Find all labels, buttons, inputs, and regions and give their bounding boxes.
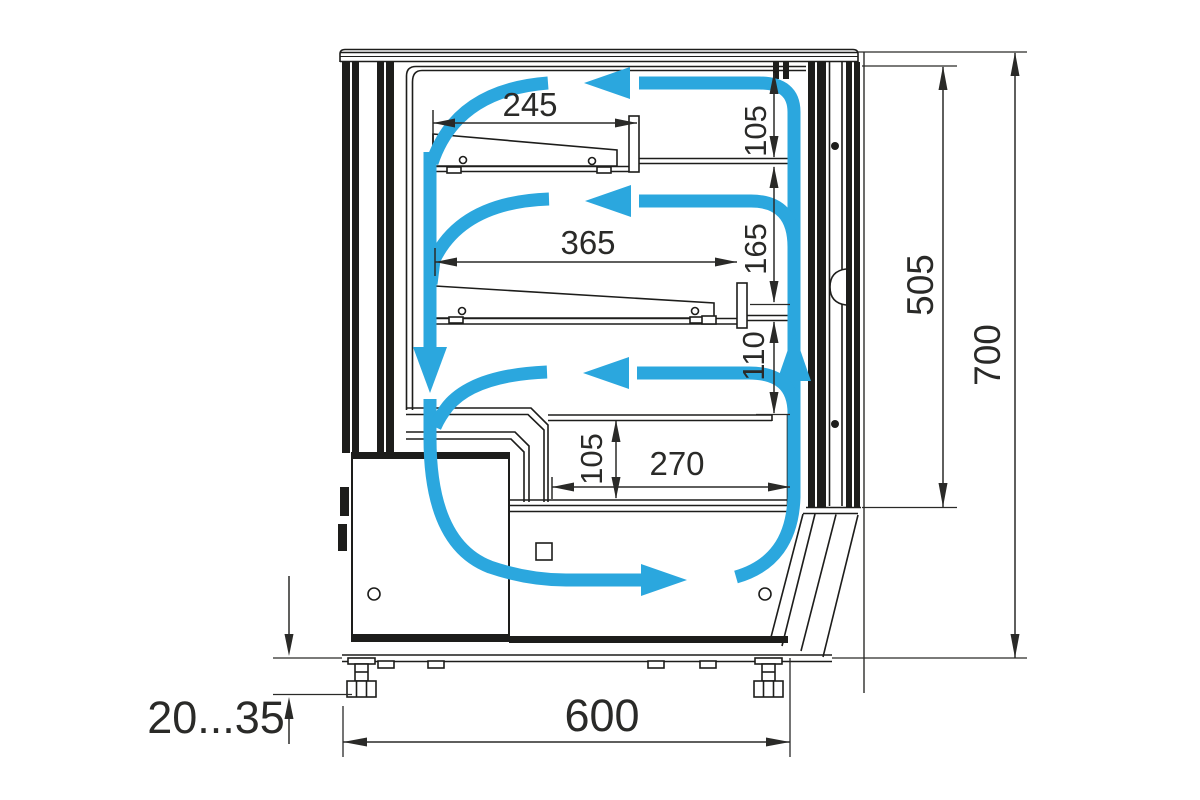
upper-shelf-bracket — [629, 116, 639, 172]
airflow-lower-left-curve — [435, 372, 547, 427]
airflow-right-arrow-icon — [641, 564, 687, 596]
dim-700 — [1011, 52, 1020, 658]
upper-shelf — [433, 116, 789, 173]
top-panel — [340, 50, 858, 63]
dim-270-label: 270 — [627, 447, 727, 481]
airflow-up-arrow-icon — [777, 332, 811, 381]
technical-drawing-canvas: 245 365 105 165 110 105 270 505 700 600 … — [0, 0, 1200, 800]
adjustable-foot-right — [754, 658, 783, 697]
airflow-middle-left-curve — [431, 199, 549, 284]
airflow-left-arrow-top-icon — [584, 67, 630, 99]
adjustable-foot-left — [347, 658, 376, 697]
dim-105-top-label: 105 — [739, 89, 773, 173]
dim-110-label: 110 — [737, 314, 771, 398]
front-glass-assembly — [806, 62, 861, 508]
dim-foot-range-label: 20...35 — [131, 694, 301, 742]
airflow-left-arrow-lower-icon — [583, 357, 629, 389]
airflow-down-arrow-icon — [413, 347, 447, 393]
dim-505-label: 505 — [901, 230, 941, 340]
machine-compartment — [338, 453, 509, 641]
dim-700-label: 700 — [968, 300, 1008, 410]
dim-365-label: 365 — [538, 226, 638, 260]
glass-hinge-detail — [830, 269, 846, 305]
lower-shelf — [435, 283, 789, 328]
dim-600-label: 600 — [532, 692, 672, 740]
glass-screw-top — [831, 142, 839, 150]
airflow-left-arrow-middle-icon — [585, 185, 631, 217]
dim-165-label: 165 — [739, 207, 773, 291]
display-case-section-drawing — [0, 0, 1200, 800]
glass-screw-bottom — [831, 420, 839, 428]
dim-245-label: 245 — [480, 88, 580, 122]
dim-105-well-label: 105 — [575, 417, 609, 501]
